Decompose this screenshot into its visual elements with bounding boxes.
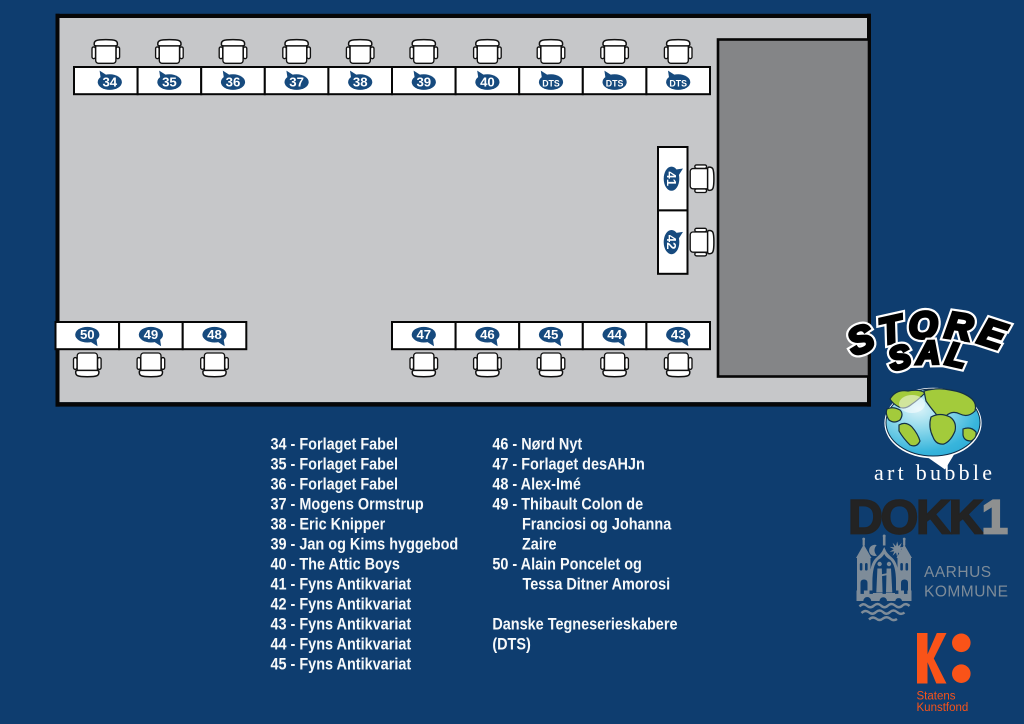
svg-text:47: 47 [416,327,431,342]
svg-text:46 - Nørd Nyt: 46 - Nørd Nyt [492,435,583,453]
svg-text:Statens: Statens [917,691,956,703]
svg-text:35 - Forlaget Fabel: 35 - Forlaget Fabel [270,455,398,473]
svg-text:AARHUS: AARHUS [924,564,992,581]
svg-text:48: 48 [207,327,222,342]
svg-text:Zaire: Zaire [522,535,557,553]
svg-text:43 - Fyns Antikvariat: 43 - Fyns Antikvariat [270,615,411,633]
svg-text:DTS: DTS [606,79,624,89]
svg-text:37 - Mogens Ormstrup: 37 - Mogens Ormstrup [270,495,423,513]
svg-text:45: 45 [544,327,559,342]
svg-text:47 - Forlaget desAHJn: 47 - Forlaget desAHJn [492,455,644,473]
svg-text:42 - Fyns Antikvariat: 42 - Fyns Antikvariat [270,595,411,613]
svg-text:42: 42 [664,235,679,250]
svg-text:Franciosi og Johanna: Franciosi og Johanna [522,515,671,533]
svg-text:37: 37 [289,75,304,90]
svg-text:Danske Tegneserieskabere: Danske Tegneserieskabere [492,615,677,633]
svg-text:41: 41 [664,171,679,186]
svg-text:38: 38 [353,75,368,90]
svg-text:(DTS): (DTS) [492,635,531,653]
svg-text:Tessa Ditner Amorosi: Tessa Ditner Amorosi [522,575,670,593]
svg-text:39: 39 [416,75,431,90]
svg-text:44: 44 [607,327,622,342]
svg-text:45 - Fyns Antikvariat: 45 - Fyns Antikvariat [270,655,411,673]
svg-text:46: 46 [480,327,495,342]
svg-text:art bubble: art bubble [874,460,992,485]
svg-text:KOMMUNE: KOMMUNE [924,584,1008,601]
svg-text:38 - Eric Knipper: 38 - Eric Knipper [270,515,385,533]
svg-text:44 - Fyns Antikvariat: 44 - Fyns Antikvariat [270,635,411,653]
svg-text:35: 35 [162,75,177,90]
svg-text:50 - Alain Poncelet og: 50 - Alain Poncelet og [492,555,642,573]
svg-text:49: 49 [144,327,159,342]
svg-text:41 - Fyns Antikvariat: 41 - Fyns Antikvariat [270,575,411,593]
svg-text:50: 50 [80,327,95,342]
svg-text:Kunstfond: Kunstfond [917,702,969,714]
svg-text:DOKK1: DOKK1 [848,491,1007,545]
svg-text:34: 34 [102,75,117,90]
svg-text:49 - Thibault Colon de: 49 - Thibault Colon de [492,495,643,513]
svg-text:39 - Jan og Kims hyggebod: 39 - Jan og Kims hyggebod [270,535,458,553]
svg-text:40: 40 [480,75,495,90]
svg-text:DTS: DTS [669,79,687,89]
svg-text:34 - Forlaget Fabel: 34 - Forlaget Fabel [270,435,398,453]
svg-text:36 - Forlaget Fabel: 36 - Forlaget Fabel [270,475,398,493]
svg-text:36: 36 [226,75,241,90]
svg-text:48 - Alex-Imé: 48 - Alex-Imé [492,475,581,493]
svg-text:40 - The Attic Boys: 40 - The Attic Boys [270,555,400,573]
svg-text:DTS: DTS [542,79,560,89]
svg-text:43: 43 [671,327,686,342]
